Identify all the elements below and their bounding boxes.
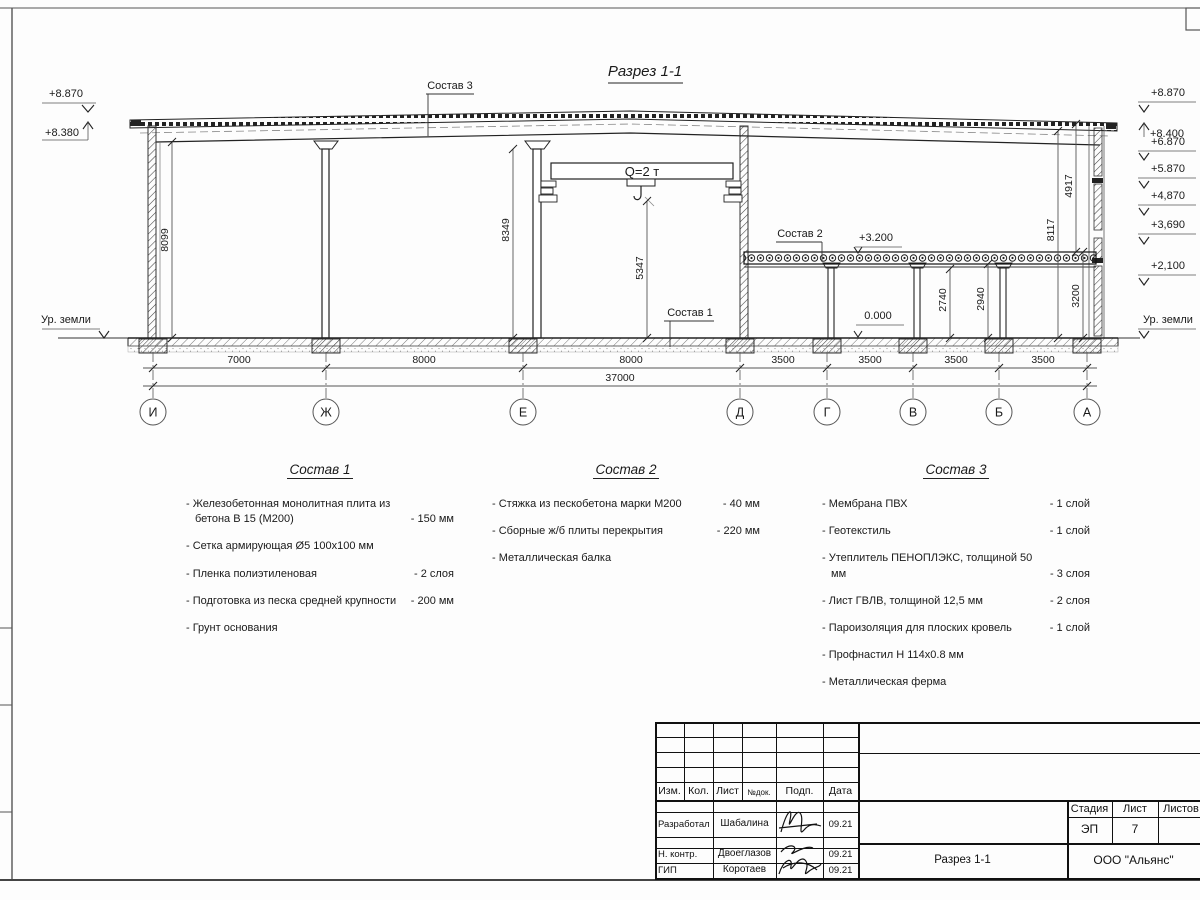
crane: Q=2 т [551,163,733,206]
spec-title: Состав 2 [492,462,760,477]
ground-level-label: Ур. земли [41,314,91,326]
tb-stage-value: ЭП [1067,822,1112,836]
tb-date: 09.21 [823,849,858,860]
title-block: Изм. Кол. Лист №док. Подп. Дата Разработ… [655,722,1200,880]
spec-title: Состав 1 [186,462,454,477]
column-axis-b [1000,268,1006,338]
elevation-marks-left: +8.870 +8.380 Ур. земли [41,88,109,338]
axis-label: В [909,406,917,420]
tb-role: ГИП [658,865,677,876]
column-axis-g [828,268,834,338]
tb-sheet-label: Лист [1112,803,1158,815]
elevation-label: +8.870 [49,88,83,100]
elevation-label: +4,870 [1151,190,1185,202]
elevation-label: +8.380 [45,127,79,139]
elevation-label: +8.870 [1151,87,1185,99]
spec-item: - Лист ГВЛВ, толщиной 12,5 мм - 2 слоя [822,594,1090,609]
crane-capacity-label: Q=2 т [625,164,660,179]
spec-item: - Утеплитель ПЕНОПЛЭКС, толщиной 50 мм -… [822,551,1090,581]
tb-sheets-label: Листов [1158,803,1200,815]
spec-item: - Пленка полиэтиленовая - 2 слоя [186,567,454,582]
tb-col-podp: Подп. [776,785,823,797]
tb-date: 09.21 [823,819,858,830]
spec-item: - Мембрана ПВХ - 1 слой [822,497,1090,512]
tb-col-kol: Кол. [684,785,713,797]
callout-sostav-3: Состав 3 [427,80,473,92]
spec-block-sostav-3: Состав 3 - Мембрана ПВХ - 1 слой - Геоте… [822,462,1090,702]
level-mezz-label: +3.200 [859,232,893,244]
crane-bracket-right [724,181,742,202]
tb-name: Шабалина [713,818,776,829]
column-axis-zh [322,149,329,338]
tb-role: Разработал [658,819,710,830]
elevation-label: +5.870 [1151,163,1185,175]
vdim-hook: 5347 [634,256,646,280]
truss-bottom-chord [156,133,1100,145]
dim-span-3: 8000 [619,354,643,366]
roof-end-plate-right [1106,123,1116,129]
dim-span-7: 3500 [1031,354,1055,366]
dim-span-2: 8000 [412,354,436,366]
tb-doc-title: Разрез 1-1 [858,854,1067,866]
vdim-mezz-slab: 2940 [975,287,987,311]
wall-axis-a [1089,126,1104,338]
frame-corner-box [1186,8,1200,30]
dim-span-6: 3500 [944,354,968,366]
axis-label: Е [519,406,527,420]
signature-razrabotal [777,802,823,840]
dim-span-1: 7000 [227,354,251,366]
vdim-right-upper: 4917 [1063,174,1075,198]
elevation-marks-right: +8.870 +8.400 +6.870 +5.870 +4,870 +3,69… [1138,87,1196,338]
axis-label: Б [995,406,1003,420]
wall-axis-i [148,126,156,338]
spec-item: - Сборные ж/б плиты перекрытия - 220 мм [492,524,760,539]
callout-sostav-2: Состав 2 [777,228,823,240]
spec-item: - Металлическая балка [492,551,760,566]
elevation-label: +6.870 [1151,136,1185,148]
axis-label: И [149,406,158,420]
roof [130,111,1117,145]
roof-end-plate-left [131,120,141,126]
callout-sostav-1: Состав 1 [667,307,713,319]
tb-name: Коротаев [713,864,776,875]
signature-gip [775,840,825,880]
spec-title: Состав 3 [822,462,1090,477]
axis-label: Д [736,406,745,420]
spec-item: - Стяжка из пескобетона марки М200 - 40 … [492,497,760,512]
tb-company: ООО "Альянс" [1067,853,1200,867]
floor-slab [128,338,1118,346]
roof-deck [130,111,1117,131]
structure [148,126,1104,338]
spec-item: - Профнастил Н 114х0.8 мм [822,648,1090,663]
tb-stage-label: Стадия [1067,803,1112,815]
mezzanine-slab [744,252,1096,264]
vdim-bay-mid: 8349 [500,218,512,242]
spec-item: - Пароизоляция для плоских кровель - 1 с… [822,621,1090,636]
column-axis-e [533,149,541,338]
spec-item: - Сетка армирующая Ø5 100х100 мм [186,539,454,554]
crane-trolley [627,179,655,186]
axis-label: Ж [320,406,332,420]
ground-level-label: Ур. земли [1143,314,1193,326]
dim-total: 37000 [605,372,634,384]
spec-block-sostav-2: Состав 2 - Стяжка из пескобетона марки М… [492,462,760,579]
tb-sheet-value: 7 [1112,822,1158,836]
column-capital [525,141,550,149]
vdim-mezz-floor: 3200 [1070,284,1082,308]
vdim-bay-left: 8099 [159,228,171,252]
floor-subbase [128,346,1118,352]
tb-role: Н. контр. [658,849,697,860]
axis-label: Г [824,406,831,420]
ground-floor [58,338,1140,352]
level-callouts: +3.200 0.000 [854,232,904,337]
tb-name: Двоеглазов [713,848,776,859]
tb-date: 09.21 [823,865,858,876]
wall-axis-d [740,126,748,338]
dim-span-5: 3500 [858,354,882,366]
spec-item: - Железобетонная монолитная плита из бет… [186,497,454,527]
elevation-label: +3,690 [1151,219,1185,231]
spec-item: - Геотекстиль - 1 слой [822,524,1090,539]
tb-col-ndok: №док. [742,788,776,797]
crane-hook [634,186,641,200]
dim-span-4: 3500 [771,354,795,366]
spec-item: - Металлическая ферма [822,675,1090,690]
crane-bracket-left [539,181,557,202]
tb-col-izm: Изм. [655,785,684,797]
elevation-label: +2,100 [1151,260,1185,272]
drawing-title: Разрез 1-1 [608,63,682,80]
column-axis-v [914,268,920,338]
vertical-dimensions: 8099 8349 5347 2740 2940 3200 8117 4917 [159,120,1087,342]
tb-col-list: Лист [713,785,742,797]
spec-block-sostav-1: Состав 1 - Железобетонная монолитная пли… [186,462,454,648]
vdim-right-full: 8117 [1045,219,1057,242]
tb-col-data: Дата [823,785,858,797]
axis-label: А [1083,406,1092,420]
spec-item: - Подготовка из песка средней крупности … [186,594,454,609]
level-zero-label: 0.000 [864,310,892,322]
drawing-sheet: Разрез 1-1 [0,0,1200,900]
column-capital [314,141,338,149]
vdim-mezz-beam: 2740 [937,288,949,312]
spec-item: - Грунт основания [186,621,454,636]
